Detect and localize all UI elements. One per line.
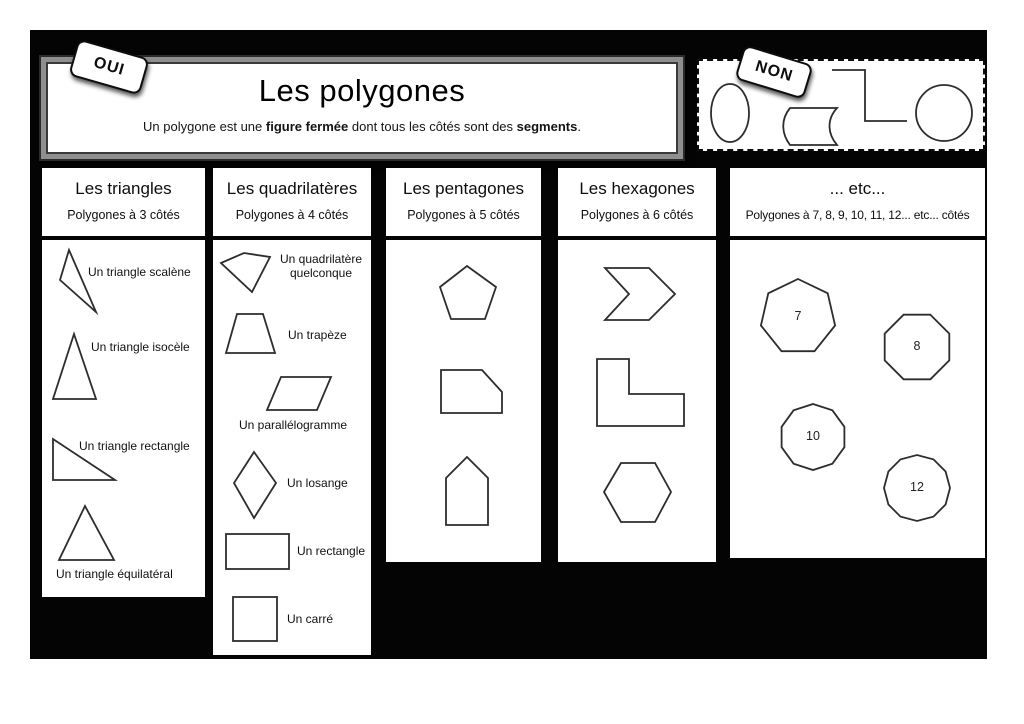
- column-title-etc: ... etc...: [730, 179, 985, 199]
- shape-label: Un quadrilatère quelconque: [273, 252, 369, 280]
- shape-label: Un carré: [287, 612, 333, 626]
- column-title-triangles: Les triangles: [42, 179, 205, 199]
- heptagon-side-count: 7: [785, 309, 811, 323]
- circle-shape: [916, 85, 972, 141]
- chevron-hexagon-shape: [605, 268, 675, 320]
- column-title-pentagons: Les pentagones: [386, 179, 541, 199]
- oui-tag-label: OUI: [91, 54, 126, 80]
- shape-label: Un triangle rectangle: [79, 439, 190, 453]
- column-body-quadrilaterals: Un quadrilatère quelconque Un trapèze Un…: [213, 240, 371, 655]
- cylinder-shape: [783, 108, 837, 145]
- shape-label: Un rectangle: [297, 544, 365, 558]
- column-body-hexagons: [558, 240, 716, 562]
- column-body-etc: 7 8 10 12: [730, 240, 985, 558]
- open-polyline-shape: [832, 70, 907, 121]
- trapezoid-shape: [226, 314, 275, 353]
- dodecagon-side-count: 12: [904, 480, 930, 494]
- regular-pentagon-shape: [440, 266, 496, 319]
- column-header-hexagons: Les hexagones Polygones à 6 côtés: [558, 168, 716, 236]
- octagon-side-count: 8: [904, 339, 930, 353]
- column-header-quadrilaterals: Les quadrilatères Polygones à 4 côtés: [213, 168, 371, 236]
- shape-label: Un triangle scalène: [88, 265, 191, 279]
- rectangle-shape: [226, 534, 289, 569]
- non-tag-label: NON: [753, 58, 795, 86]
- house-pentagon-shape: [446, 457, 488, 525]
- shape-label: Un parallélogramme: [227, 418, 359, 432]
- column-subtitle-etc: Polygones à 7, 8, 9, 10, 11, 12... etc..…: [730, 208, 985, 222]
- equilateral-triangle-shape: [59, 506, 114, 560]
- scalene-triangle-shape: [60, 250, 96, 312]
- column-subtitle-hexagons: Polygones à 6 côtés: [558, 208, 716, 222]
- polygon-poster: { "poster": { "oui_tag": "OUI", "non_tag…: [0, 0, 1024, 724]
- shape-label: Un losange: [287, 476, 348, 490]
- column-subtitle-quadrilaterals: Polygones à 4 côtés: [213, 208, 371, 222]
- column-header-pentagons: Les pentagones Polygones à 5 côtés: [386, 168, 541, 236]
- pentagon-shapes: [386, 240, 541, 562]
- decagon-side-count: 10: [800, 429, 826, 443]
- regular-hexagon-shape: [604, 463, 671, 522]
- isoceles-triangle-shape: [53, 334, 96, 399]
- quadrilateral-shapes: [213, 240, 371, 655]
- column-body-triangles: Un triangle scalène Un triangle isocèle …: [42, 240, 205, 597]
- square-shape: [233, 597, 277, 641]
- rhombus-shape: [234, 452, 276, 518]
- l-hexagon-shape: [597, 359, 684, 426]
- column-title-quadrilaterals: Les quadrilatères: [213, 179, 371, 199]
- column-body-pentagons: [386, 240, 541, 562]
- any-quadrilateral-shape: [221, 253, 270, 292]
- irregular-pentagon-shape: [441, 370, 502, 413]
- shape-label: Un trapèze: [288, 328, 347, 342]
- many-sided-polygon-shapes: [730, 240, 985, 558]
- column-subtitle-triangles: Polygones à 3 côtés: [42, 208, 205, 222]
- ellipse-shape: [711, 84, 749, 142]
- definition-text: Un polygone est une figure fermée dont t…: [48, 119, 676, 134]
- parallelogram-shape: [267, 377, 331, 410]
- hexagon-shapes: [558, 240, 716, 562]
- column-header-etc: ... etc... Polygones à 7, 8, 9, 10, 11, …: [730, 168, 985, 236]
- shape-label: Un triangle équilatéral: [56, 567, 173, 581]
- triangle-shapes: [42, 240, 205, 597]
- shape-label: Un triangle isocèle: [91, 340, 190, 354]
- column-subtitle-pentagons: Polygones à 5 côtés: [386, 208, 541, 222]
- column-header-triangles: Les triangles Polygones à 3 côtés: [42, 168, 205, 236]
- column-title-hexagons: Les hexagones: [558, 179, 716, 199]
